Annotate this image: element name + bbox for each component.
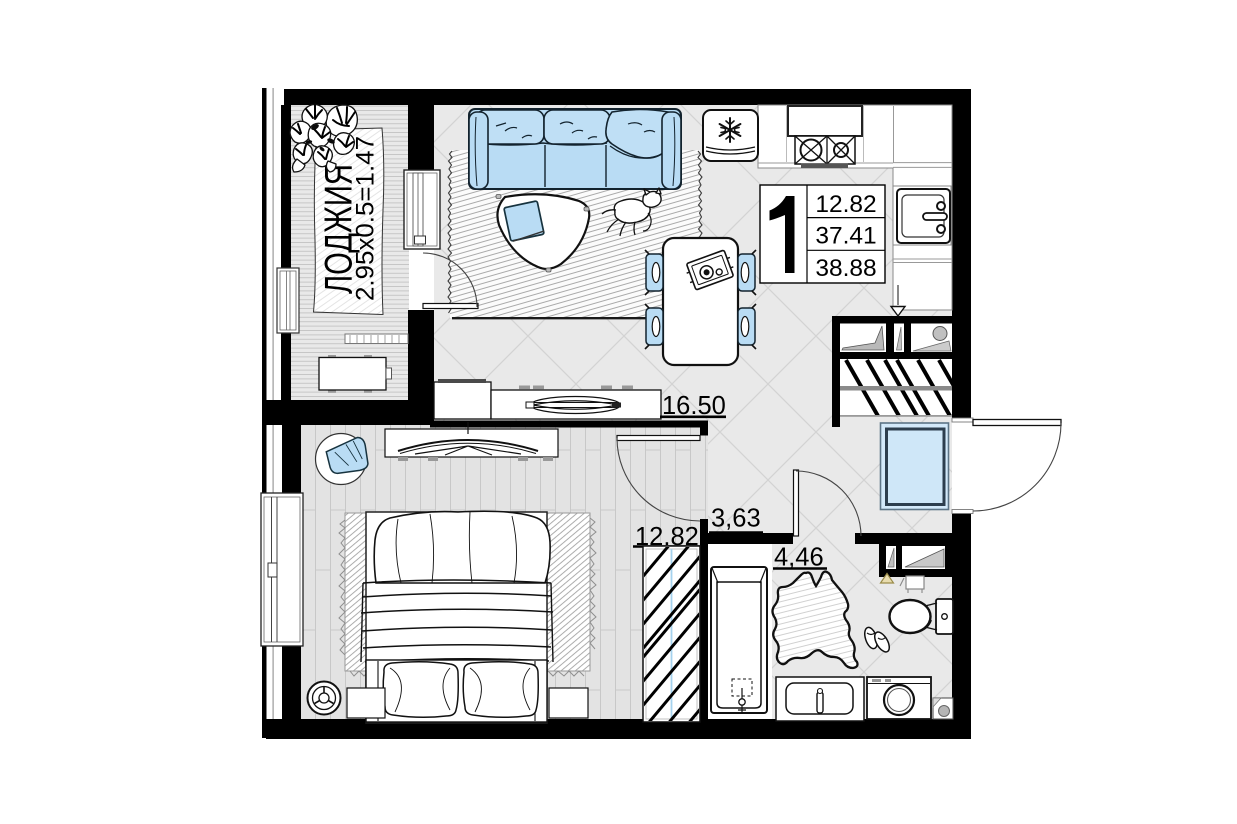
svg-text:12.82: 12.82 bbox=[815, 191, 876, 218]
svg-text:3,63: 3,63 bbox=[711, 505, 761, 533]
svg-text:2.95х0.5=1.47: 2.95х0.5=1.47 bbox=[352, 136, 380, 301]
svg-text:38.88: 38.88 bbox=[815, 255, 876, 282]
svg-text:37.41: 37.41 bbox=[815, 223, 876, 250]
